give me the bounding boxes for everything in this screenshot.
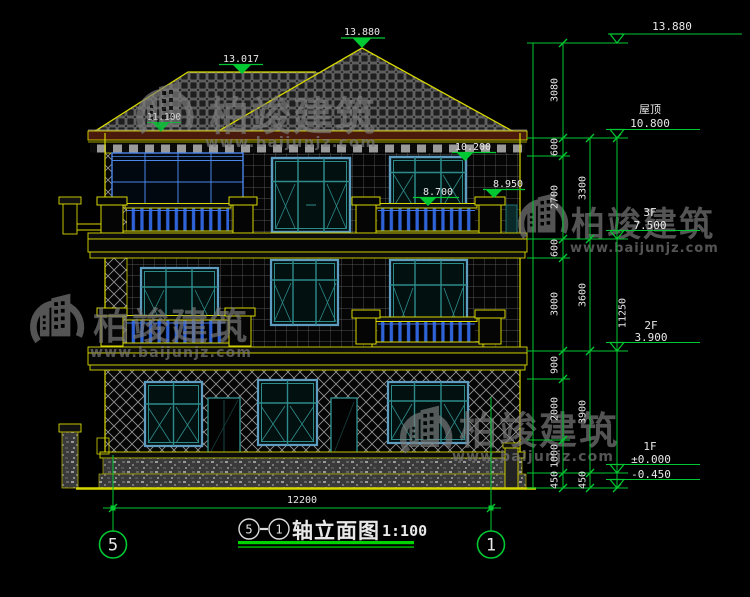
title-axis-from: 5 bbox=[245, 523, 252, 537]
dim-value: 3300 bbox=[578, 176, 589, 200]
elevation-value: 13.880 bbox=[652, 20, 692, 33]
window-2f-middle bbox=[271, 260, 338, 325]
elevation-value: 10.200 bbox=[455, 142, 491, 153]
elevation-value: 8.700 bbox=[423, 187, 453, 198]
floor-label: 屋顶 bbox=[639, 103, 661, 116]
watermark-name: 柏竣建筑 bbox=[209, 94, 377, 140]
title-scale: 1:100 bbox=[382, 522, 427, 540]
door-1f-middle bbox=[331, 398, 357, 455]
title-text: 轴立面图 bbox=[292, 519, 380, 543]
cad-elevation-screenshot: 柏竣建筑 www.baijunjz.com 柏竣建筑 www.baijunjz.… bbox=[0, 0, 750, 597]
dim-value: 1000 bbox=[550, 444, 561, 468]
dim-value: 600 bbox=[550, 239, 561, 257]
balcony-3f-left bbox=[97, 197, 257, 237]
sunroom-window bbox=[112, 153, 243, 205]
dim-value: 3000 bbox=[550, 292, 561, 316]
dim-value: 2000 bbox=[550, 397, 561, 421]
watermark-name: 柏竣建筑 bbox=[459, 409, 619, 453]
title-axis-to: 1 bbox=[275, 523, 282, 537]
window-1f-middle bbox=[258, 380, 317, 445]
dim-width: 12200 bbox=[287, 495, 317, 506]
dim-value: 3600 bbox=[578, 283, 589, 307]
watermark-url: www.baijunjz.com bbox=[90, 345, 252, 361]
floor-label: 1F bbox=[643, 440, 656, 453]
window-3f-middle bbox=[272, 158, 350, 232]
watermark-url: www.baijunjz.com bbox=[570, 241, 719, 256]
title-underline-thin bbox=[238, 546, 414, 547]
elevation-value: 10.800 bbox=[630, 117, 670, 130]
watermark-url: www.baijunjz.com bbox=[205, 135, 377, 151]
elevation-value: 8.950 bbox=[493, 179, 523, 190]
dim-total-height: 11250 bbox=[618, 298, 629, 328]
watermark-name: 柏竣建筑 bbox=[93, 305, 249, 348]
dim-value: 3080 bbox=[550, 78, 561, 102]
floor-cornice-3f bbox=[88, 233, 527, 258]
elevation-value: 13.880 bbox=[344, 27, 380, 38]
dim-value: 450 bbox=[578, 471, 589, 489]
elevation-value: 13.017 bbox=[223, 54, 259, 65]
dim-value: 450 bbox=[550, 471, 561, 489]
dim-value: 600 bbox=[550, 138, 561, 156]
dim-value: 2700 bbox=[550, 185, 561, 209]
title-underline-thick bbox=[238, 541, 414, 544]
axis-number: 5 bbox=[108, 536, 118, 556]
floor-label: 3F bbox=[643, 206, 656, 219]
axis-number: 1 bbox=[486, 536, 496, 556]
elevation-drawing: 柏竣建筑 www.baijunjz.com 柏竣建筑 www.baijunjz.… bbox=[0, 0, 750, 597]
elevation-value: 11.100 bbox=[147, 112, 182, 123]
window-1f-left bbox=[145, 382, 202, 446]
door-1f-left bbox=[208, 398, 240, 455]
dim-value: 900 bbox=[550, 356, 561, 374]
dim-value: 3900 bbox=[578, 400, 589, 424]
